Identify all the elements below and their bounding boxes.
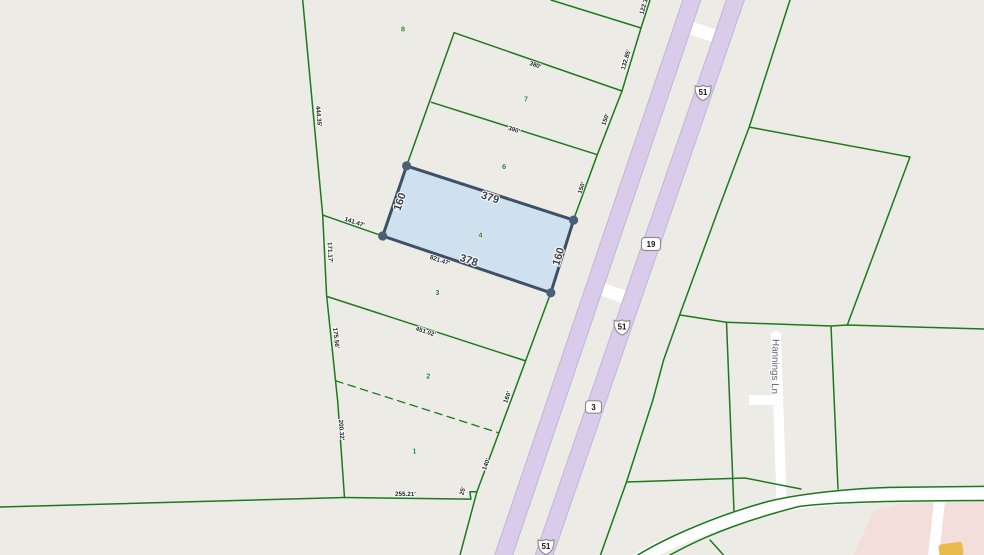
- svg-text:2: 2: [426, 372, 430, 381]
- svg-text:51: 51: [618, 323, 627, 332]
- svg-text:51: 51: [699, 88, 708, 97]
- svg-text:171.17': 171.17': [326, 242, 334, 264]
- svg-text:200.32': 200.32': [337, 419, 345, 441]
- svg-text:8: 8: [401, 25, 405, 34]
- svg-text:3: 3: [591, 403, 596, 412]
- svg-text:19: 19: [647, 240, 656, 249]
- svg-text:6: 6: [502, 162, 506, 171]
- svg-text:7: 7: [524, 95, 528, 104]
- svg-text:Hannings Ln: Hannings Ln: [769, 339, 781, 394]
- svg-text:1: 1: [412, 447, 416, 456]
- svg-text:3: 3: [435, 288, 439, 297]
- svg-text:255.21': 255.21': [395, 491, 416, 498]
- svg-text:51: 51: [542, 542, 551, 551]
